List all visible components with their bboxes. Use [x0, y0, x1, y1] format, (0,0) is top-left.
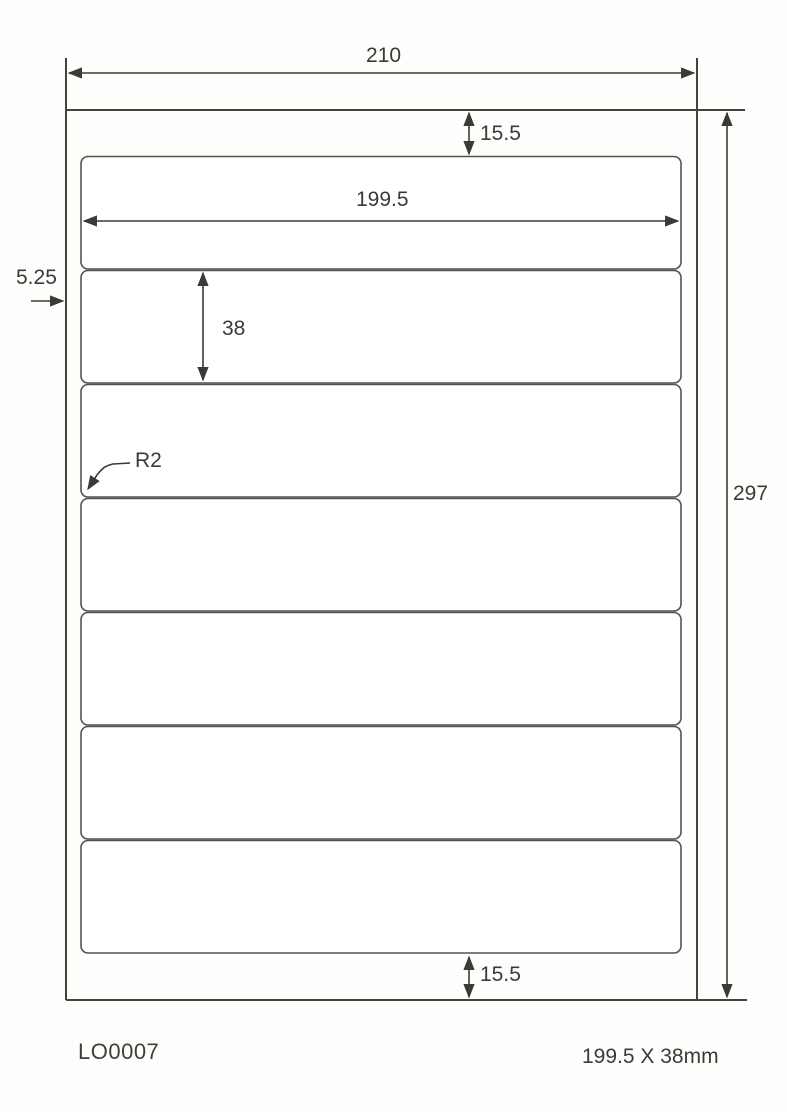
- dim-sheet-height-label: 297: [733, 483, 768, 504]
- dim-left-margin-label: 5.25: [16, 267, 57, 288]
- label-row-4: [81, 499, 681, 612]
- dim-bottom-margin-label: 15.5: [480, 964, 521, 985]
- dim-label-height-label: 38: [222, 318, 245, 339]
- product-code: LO0007: [78, 1041, 159, 1063]
- corner-radius-label: R2: [135, 450, 162, 471]
- label-row-1: [81, 157, 681, 270]
- label-row-7: [81, 841, 681, 954]
- dim-sheet-width-label: 210: [366, 45, 401, 66]
- label-row-5: [81, 613, 681, 726]
- diagram-canvas: [0, 0, 787, 1112]
- label-sheet-diagram: 210 199.5 15.5 38 5.25 R2 297 15.5 LO000…: [0, 0, 787, 1112]
- label-rows: [81, 157, 681, 954]
- label-row-3: [81, 385, 681, 498]
- dim-label-width-label: 199.5: [356, 189, 409, 210]
- label-row-6: [81, 727, 681, 840]
- label-row-2: [81, 271, 681, 384]
- dim-top-margin-label: 15.5: [480, 123, 521, 144]
- label-size-note: 199.5 X 38mm: [582, 1046, 719, 1067]
